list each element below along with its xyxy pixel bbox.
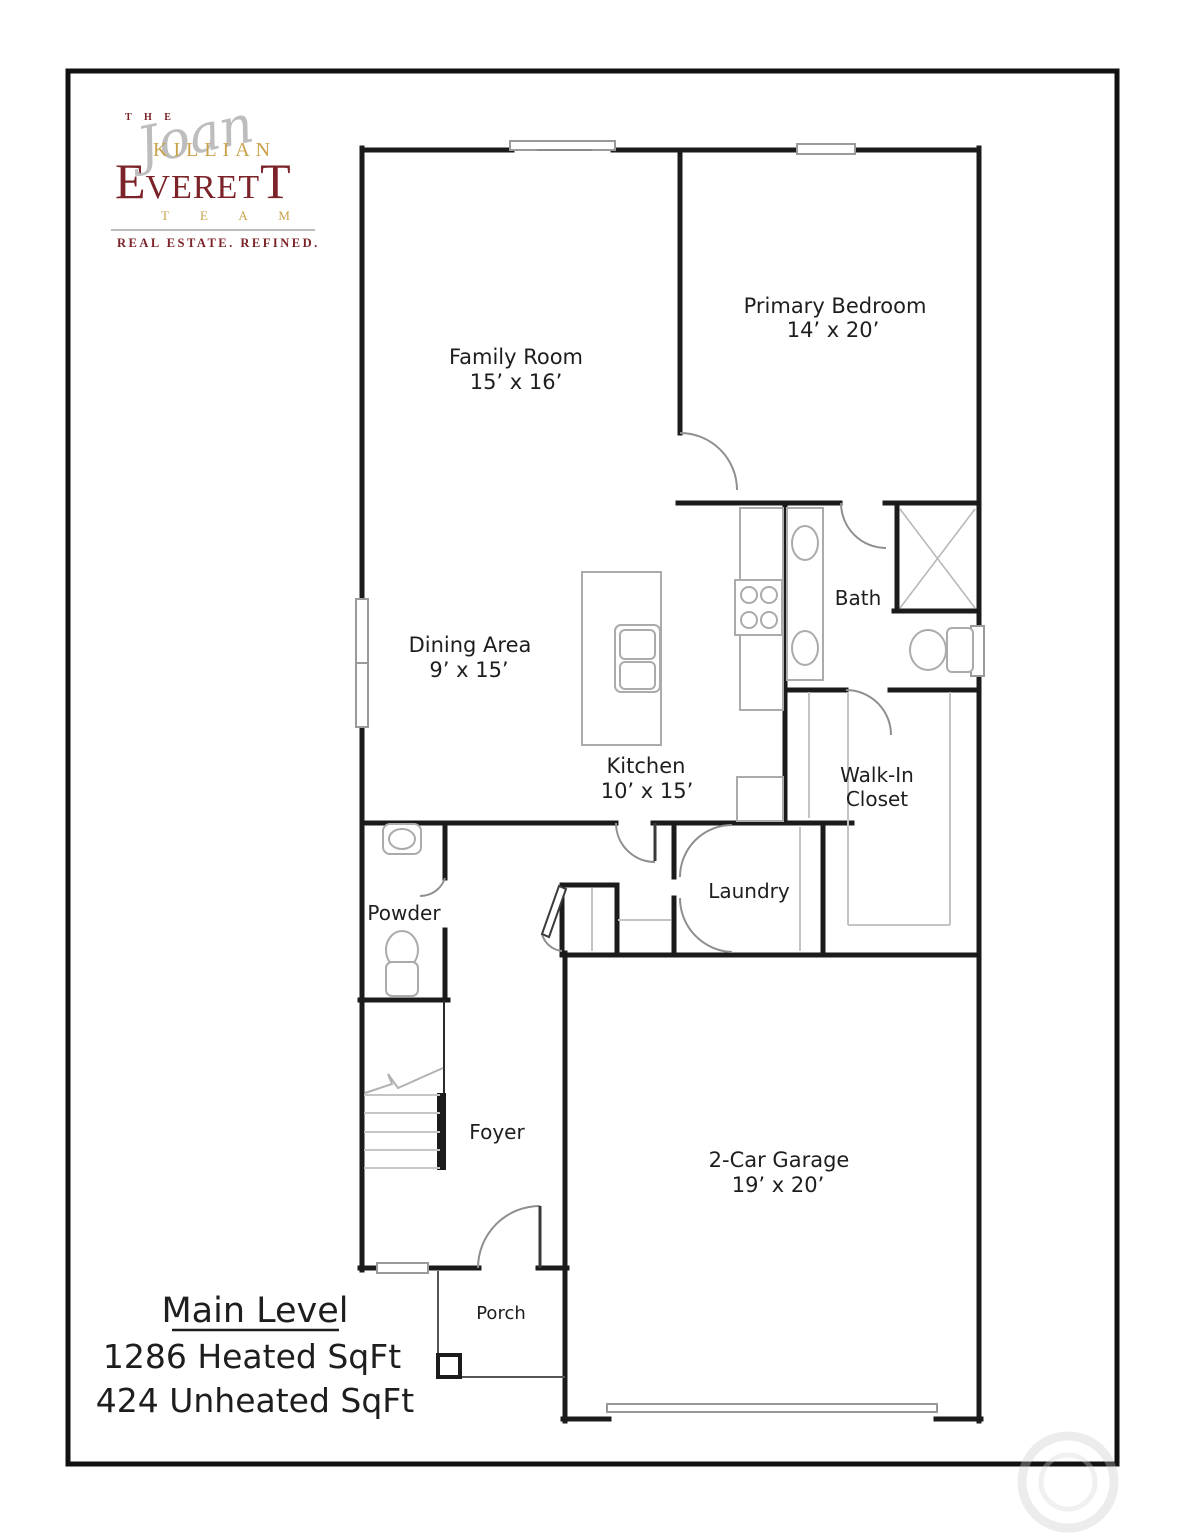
dining-window-lower xyxy=(356,663,368,727)
laundry-door-arc-upper xyxy=(680,825,732,877)
dining-area-dims: 9’ x 15’ xyxy=(429,658,508,682)
logo-tagline: REAL ESTATE. REFINED. xyxy=(117,236,345,251)
unheated-sqft: 424 Unheated SqFt xyxy=(96,1381,415,1420)
laundry-door-arc-lower xyxy=(680,898,732,952)
page-border xyxy=(68,71,1117,1464)
garage-door xyxy=(607,1404,937,1412)
logo-divider xyxy=(111,229,315,231)
level-title: Main Level xyxy=(161,1291,348,1331)
kitchen-cabinet xyxy=(737,777,783,821)
walk-in-closet-label-2: Closet xyxy=(846,787,908,811)
bath-toilet-bowl xyxy=(910,630,946,670)
bath-door-arc xyxy=(841,503,886,548)
summary-block: Main Level 1286 Heated SqFt 424 Unheated… xyxy=(96,1291,415,1420)
garage-label: 2-Car Garage xyxy=(709,1148,850,1172)
mls-watermark xyxy=(1022,1436,1114,1528)
walk-in-closet-label-1: Walk-In xyxy=(840,763,914,787)
porch-label: Porch xyxy=(476,1303,526,1324)
foyer-label: Foyer xyxy=(469,1120,525,1144)
family-room-dims: 15’ x 16’ xyxy=(470,370,563,394)
stairs xyxy=(364,1068,443,1168)
primary-bedroom-window xyxy=(797,144,855,154)
front-door-arc xyxy=(478,1206,540,1268)
primary-bedroom-dims: 14’ x 20’ xyxy=(787,318,880,342)
logo-team: T E A M xyxy=(161,208,345,224)
door-leaves xyxy=(540,823,655,1268)
porch-post xyxy=(438,1355,460,1377)
bath-sink-1 xyxy=(792,526,818,560)
dining-window-upper xyxy=(356,599,368,663)
powder-label: Powder xyxy=(367,901,441,925)
stair-direction-line xyxy=(365,1068,443,1093)
kitchen-label: Kitchen xyxy=(607,754,686,778)
dining-area-label: Dining Area xyxy=(409,633,532,657)
family-room-window xyxy=(510,141,615,150)
garage-dims: 19’ x 20’ xyxy=(732,1173,825,1197)
laundry-label: Laundry xyxy=(708,879,790,903)
mudroom-door-arc xyxy=(542,934,562,951)
family-room-label: Family Room xyxy=(449,345,583,369)
room-labels: Family Room 15’ x 16’ Primary Bedroom 14… xyxy=(367,294,926,1324)
floor-plan-page: T H E Joan KILLIAN EVERETT T E A M REAL … xyxy=(0,0,1186,1536)
powder-door-arc xyxy=(420,878,445,896)
closet-door-arc xyxy=(846,690,891,735)
heated-sqft: 1286 Heated SqFt xyxy=(103,1337,401,1376)
powder-toilet-tank xyxy=(386,962,418,996)
logo-the: T H E xyxy=(125,112,345,123)
primary-bedroom-label: Primary Bedroom xyxy=(744,294,927,318)
bath-sink-2 xyxy=(792,631,818,665)
kitchen-dims: 10’ x 15’ xyxy=(601,779,694,803)
bedroom-door-arc xyxy=(680,433,737,490)
bath-toilet-tank xyxy=(947,628,973,672)
foyer-window xyxy=(377,1263,428,1273)
brand-logo: T H E Joan KILLIAN EVERETT T E A M REAL … xyxy=(95,112,345,262)
kitchen-door-arc xyxy=(616,823,655,862)
shower xyxy=(900,509,975,608)
bath-label: Bath xyxy=(835,586,882,610)
logo-everett: EVERETT xyxy=(115,156,345,206)
porch-outline xyxy=(438,1271,565,1377)
